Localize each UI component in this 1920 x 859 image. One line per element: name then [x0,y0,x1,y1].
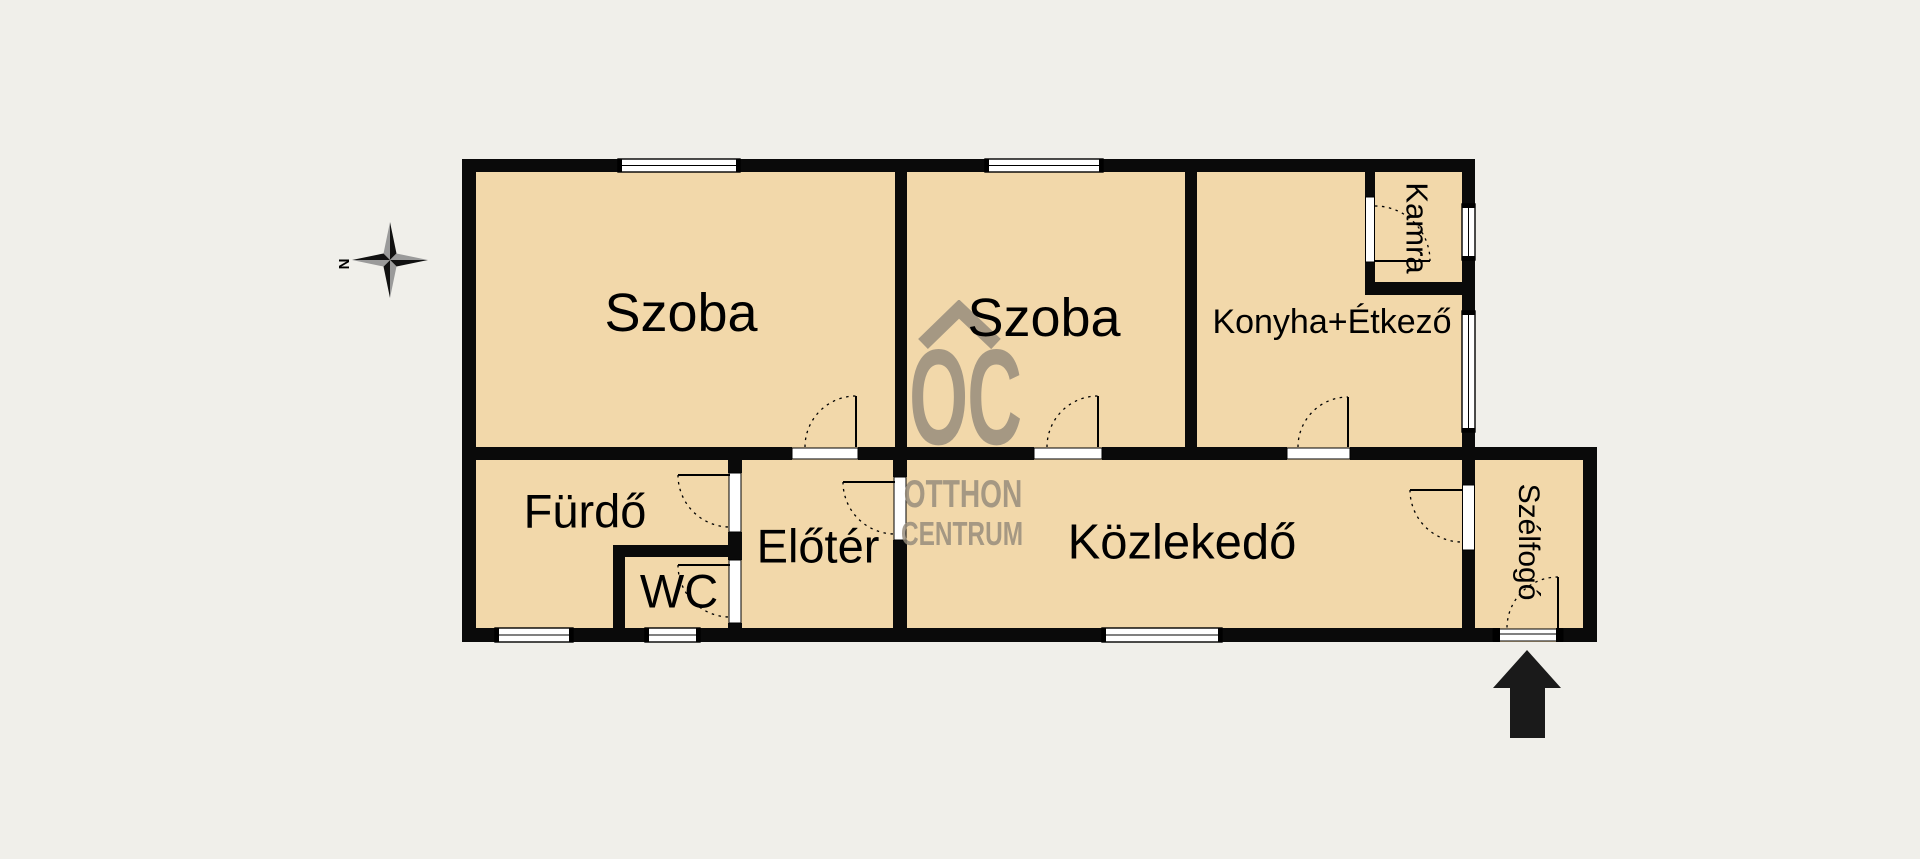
room-label-kamra: Kamra [1402,182,1433,273]
room-label-konyha-etkezo: Konyha+Étkező [1212,305,1451,339]
window [618,159,740,172]
floor-plan-page: N OC OTTHON CENTRUM Szoba Szoba Konyha+É… [0,0,1920,859]
room-label-eloter: Előtér [757,523,880,570]
entrance-door [1493,628,1563,642]
window [645,628,700,642]
room-label-furdo: Fürdő [524,488,647,535]
floor-plan-drawing: N [0,0,1920,859]
room-label-szelfogo: Szélfogó [1513,484,1543,601]
compass-icon: N [336,222,428,298]
window [1102,628,1222,642]
entrance-arrow-icon [1493,650,1561,738]
room-label-szoba-1: Szoba [604,286,757,340]
window [1462,311,1475,432]
room-label-szoba-2: Szoba [967,291,1120,345]
north-label: N [336,259,353,270]
room-label-wc: WC [640,568,718,615]
room-label-kozlekedo: Közlekedő [1068,519,1297,568]
window [985,159,1103,172]
window [495,628,573,642]
window [1462,204,1475,260]
